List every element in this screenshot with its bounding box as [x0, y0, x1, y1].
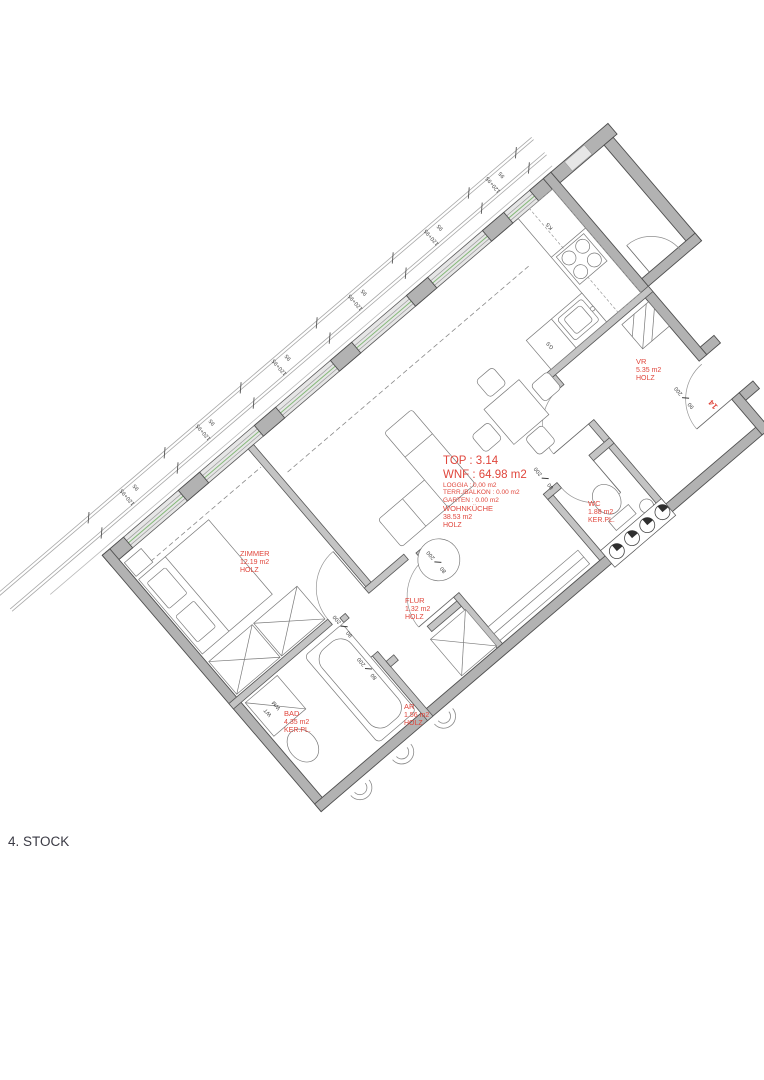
room-name: WOHNKÜCHE	[443, 505, 493, 514]
room-floor: HOLZ	[405, 614, 430, 622]
room-floor: HOLZ	[636, 375, 661, 383]
room-name: ZIMMER	[240, 550, 270, 559]
room-floor: KER.PL.	[588, 517, 615, 525]
title-top: TOP : 3.14	[443, 455, 527, 469]
room-floor: HOLZ	[443, 522, 493, 530]
title-terr-balkon: TERR./BALKON : 0.00 m2	[443, 489, 527, 496]
room-area: 12.19 m2	[240, 559, 270, 567]
dim-tick	[341, 626, 348, 628]
floorplan-rotor: KS GS WT WM 80200 80200 80200 80200 9020…	[0, 0, 764, 996]
room-area: 1.32 m2	[405, 606, 430, 614]
room-name: WC	[588, 500, 615, 509]
room-name: FLUR	[405, 597, 430, 606]
room-area: 1.56 m2	[404, 712, 429, 720]
room-label-wohnkueche: WOHNKÜCHE 38.53 m2 HOLZ	[443, 505, 493, 529]
title-loggia: LOGGIA : 0,00 m2	[443, 482, 527, 489]
room-label-ar: AR 1.56 m2 HOLZ	[404, 703, 429, 727]
floorplan-drawing	[0, 0, 764, 996]
room-label-wc: WC 1.88 m2 KER.PL.	[588, 500, 615, 524]
room-label-zimmer: ZIMMER 12.19 m2 HOLZ	[240, 550, 270, 574]
dim-tick	[683, 397, 690, 399]
room-area: 38.53 m2	[443, 514, 493, 522]
title-wnf: WNF : 64.98 m2	[443, 469, 527, 483]
title-garten: GARTEN : 0.00 m2	[443, 497, 527, 504]
room-label-vr: VR 5.35 m2 HOLZ	[636, 358, 661, 382]
room-name: BAD	[284, 710, 311, 719]
dim-tick	[542, 478, 549, 480]
room-area: 4.35 m2	[284, 719, 311, 727]
room-floor: HOLZ	[240, 567, 270, 575]
room-area: 5.35 m2	[636, 367, 661, 375]
dim-tick	[365, 668, 372, 670]
room-label-bad: BAD 4.35 m2 KER.PL.	[284, 710, 311, 734]
room-floor: HOLZ	[404, 720, 429, 728]
room-name: AR	[404, 703, 429, 712]
room-area: 1.88 m2	[588, 509, 615, 517]
dim-tick	[435, 562, 442, 564]
room-name: VR	[636, 358, 661, 367]
title-block: TOP : 3.14 WNF : 64.98 m2 LOGGIA : 0,00 …	[443, 455, 527, 504]
room-label-flur: FLUR 1.32 m2 HOLZ	[405, 597, 430, 621]
room-floor: KER.PL.	[284, 727, 311, 735]
floorplan-canvas: KS GS WT WM 80200 80200 80200 80200 9020…	[0, 0, 764, 1080]
floor-label: 4. STOCK	[8, 834, 69, 849]
